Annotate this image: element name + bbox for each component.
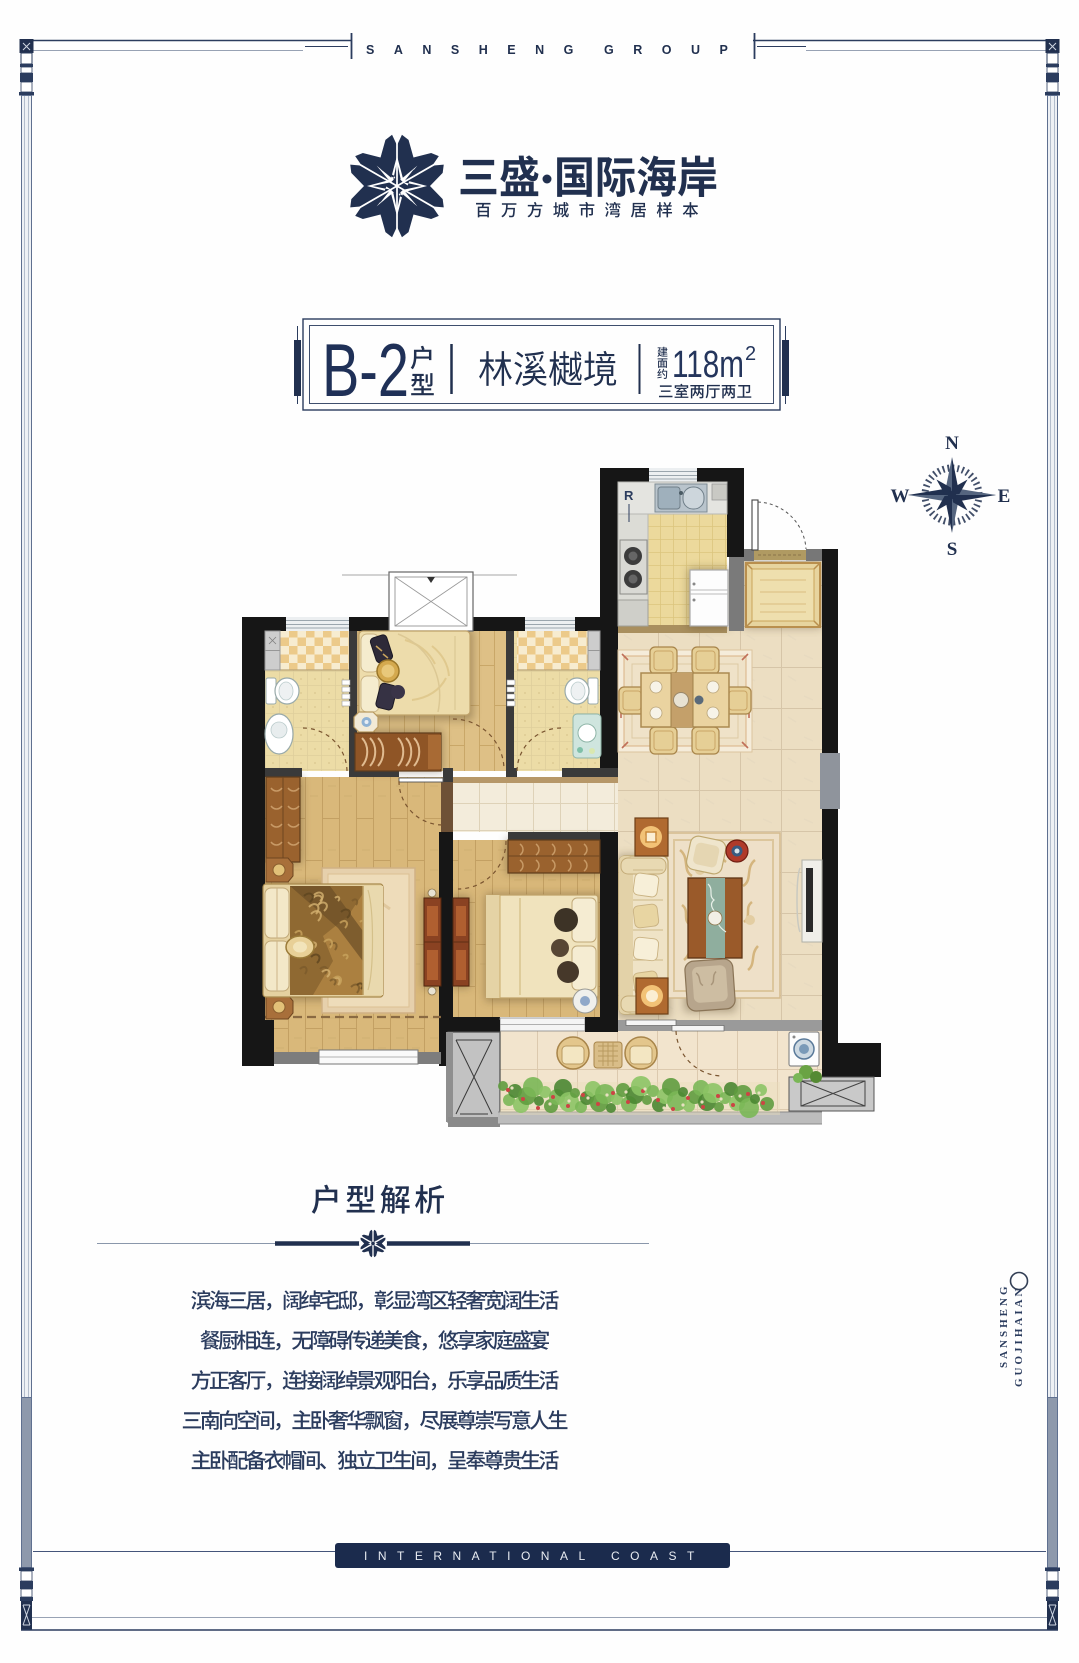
svg-text:INTERNATIONAL: INTERNATIONAL bbox=[364, 1549, 596, 1563]
svg-text:SANSHENG: SANSHENG bbox=[998, 1283, 1010, 1368]
svg-text:118m: 118m bbox=[672, 344, 744, 386]
svg-text:B-2: B-2 bbox=[322, 328, 409, 412]
svg-text:W: W bbox=[891, 486, 910, 507]
svg-text:2: 2 bbox=[745, 343, 756, 365]
svg-text:GUOJIHAIAN: GUOJIHAIAN bbox=[1013, 1285, 1025, 1387]
svg-text:COAST: COAST bbox=[611, 1549, 705, 1563]
svg-text:SANSHENG: SANSHENG bbox=[366, 43, 593, 57]
svg-text:GROUP: GROUP bbox=[604, 43, 747, 57]
svg-text:R: R bbox=[624, 488, 634, 503]
svg-text:E: E bbox=[998, 486, 1011, 507]
svg-text:S: S bbox=[947, 539, 958, 560]
svg-text:N: N bbox=[945, 433, 959, 454]
